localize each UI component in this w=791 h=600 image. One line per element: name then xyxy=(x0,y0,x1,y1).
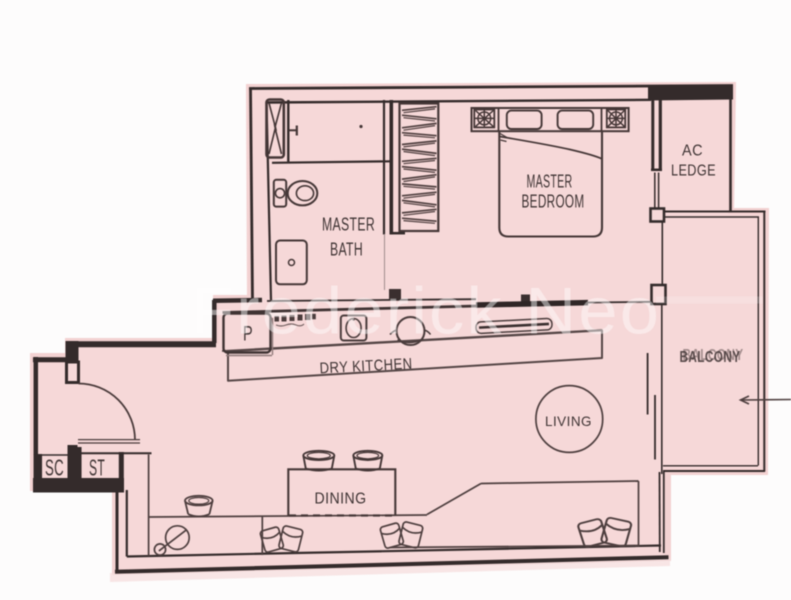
svg-text:AC: AC xyxy=(682,143,703,160)
svg-text:BALCONY: BALCONY xyxy=(683,347,744,364)
svg-text:LEDGE: LEDGE xyxy=(671,163,716,180)
svg-text:SC: SC xyxy=(45,455,64,481)
svg-text:BEDROOM: BEDROOM xyxy=(522,192,585,212)
svg-text:DINING: DINING xyxy=(315,491,367,508)
svg-text:MASTER: MASTER xyxy=(322,215,375,235)
svg-text:Frederick Neo: Frederick Neo xyxy=(191,274,661,348)
svg-text:LIVING: LIVING xyxy=(545,413,592,429)
svg-text:MASTER: MASTER xyxy=(527,172,573,192)
svg-text:ST: ST xyxy=(89,455,105,481)
svg-text:BATH: BATH xyxy=(330,240,363,260)
